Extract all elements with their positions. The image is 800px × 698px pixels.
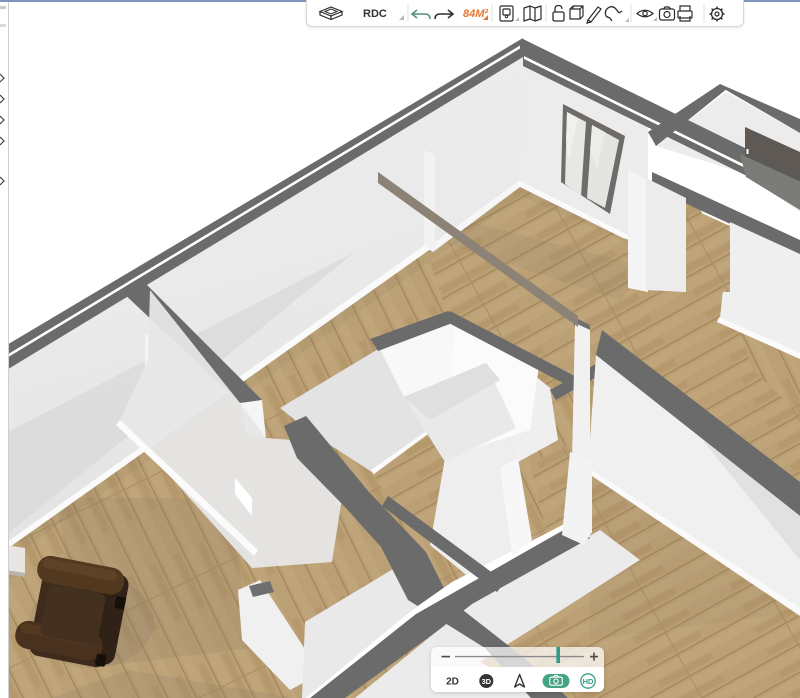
svg-text:RDC: RDC (363, 8, 387, 20)
svg-text:84M²: 84M² (463, 8, 488, 20)
svg-text:HD: HD (583, 677, 594, 686)
svg-text:3D: 3D (482, 677, 492, 686)
svg-text:2D: 2D (446, 677, 459, 688)
